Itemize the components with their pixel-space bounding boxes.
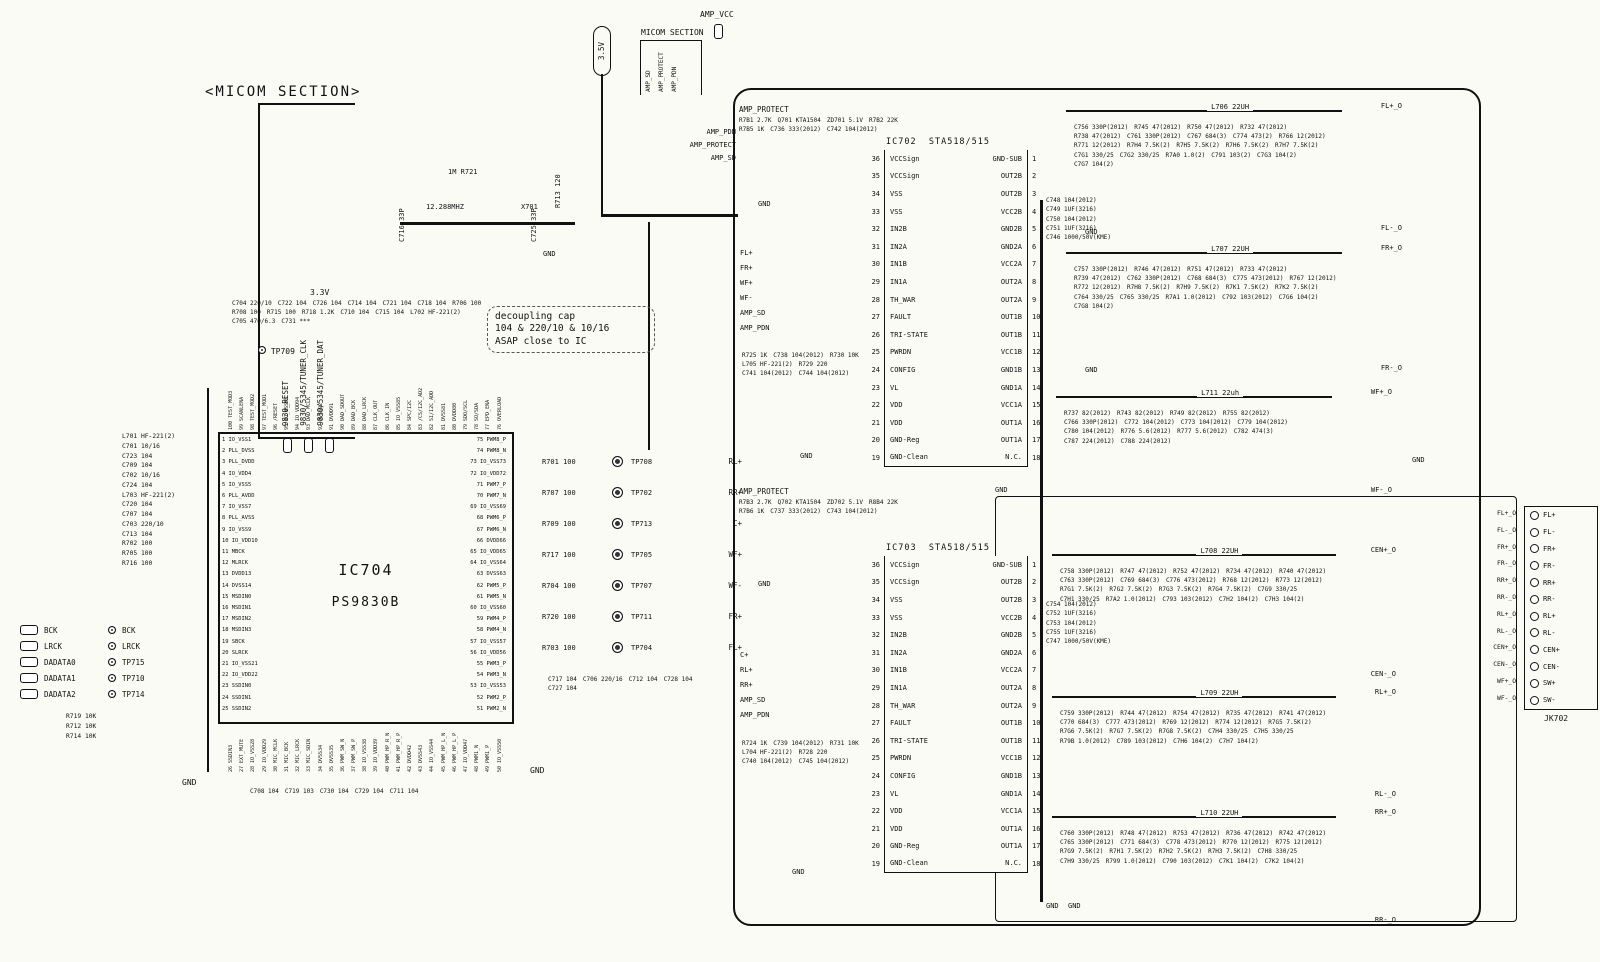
inductor-label: L707 22UH (1207, 245, 1253, 253)
testpoint-label: TP702 (631, 489, 675, 497)
signal-label: AMP_PROTECT (690, 139, 736, 152)
pin-label: 96 /RESET (273, 382, 284, 430)
note-line: decoupling cap (495, 311, 647, 323)
note-line: ASAP close to IC (495, 336, 647, 348)
signal-label: FL+_O (1381, 102, 1402, 110)
micom-section-title: <MICOM SECTION> (205, 84, 361, 100)
part-label: C703 220/10 (122, 520, 175, 530)
ic-pin-row: 28 TH_WAROUT2A 9 (858, 291, 1054, 309)
part-label: C7H5 330/25 (1254, 728, 1294, 735)
signal-label: WF-_O (1371, 486, 1392, 494)
pin-label: GND-Reg (890, 842, 920, 850)
part-label: R7K2 7.5K(2) (1275, 284, 1318, 291)
pin-number: 35 (858, 578, 884, 586)
part-label: C7G2 330/25 (1120, 152, 1160, 159)
part-label: C768 684(3) (1187, 275, 1227, 282)
pin-label: 82 SI/I2C_ADD (429, 382, 440, 430)
ic703-input-parts: R724 1KC739 104(2012)R731 10KL704 HF-221… (742, 740, 860, 766)
part-label: C7H1 330/25 (1060, 596, 1100, 603)
testpoint-label: LRCK (122, 642, 140, 651)
signal-label: RR-_O (1375, 916, 1396, 924)
part-label: R705 100 (122, 549, 175, 559)
pin-label: 48 PWM1_N (474, 724, 485, 772)
part-label: C7G6 104(2) (1279, 294, 1319, 301)
pin-number: 19 (858, 454, 884, 462)
part-label: C7G1 330/25 (1074, 152, 1114, 159)
part-label: R772 12(2012) (1074, 284, 1121, 291)
pin-circle-icon (1530, 645, 1539, 654)
part-label: R742 47(2012) (1279, 830, 1326, 837)
pad-icon (20, 625, 38, 635)
pin-label: SW+ (1543, 679, 1556, 687)
part-label: C707 104 (122, 510, 175, 520)
part-label: C720 104 (122, 500, 175, 510)
part-label: R766 12(2012) (1279, 133, 1326, 140)
pin-number: 34 (858, 596, 884, 604)
wire (1052, 696, 1336, 698)
part-label: R745 47(2012) (1134, 124, 1181, 131)
part-label: R716 100 (122, 559, 175, 569)
part-label: C731 *** (281, 318, 310, 325)
gnd-label: GND (182, 778, 196, 787)
signal-label: FR-_O (1446, 560, 1516, 577)
pin-label: OUT2B (1001, 190, 1022, 198)
signal-label: FR+ (728, 612, 742, 621)
part-label: C773 104(2012) (1181, 419, 1232, 426)
pin-label: VCC2B (1001, 614, 1022, 622)
pin-label: 16 MSDIN1 (222, 603, 258, 614)
resistor-label: R713 120 (554, 166, 562, 208)
pin-label: VDD (890, 825, 903, 833)
part-label: R750 47(2012) (1187, 124, 1234, 131)
pin-label: 21 IO_VSS21 (222, 659, 258, 670)
part-label: C788 224(2012) (1121, 438, 1172, 445)
part-label: L701 HF-221(2) (122, 432, 175, 442)
part-label: R7G1 7.5K(2) (1060, 586, 1103, 593)
pin-label: VCC2B (1001, 208, 1022, 216)
pin-number: 36 (858, 561, 884, 569)
ic-pin-row: 30 IN1BVCC2A 7 (858, 662, 1054, 680)
connector-pin-row: FL+ (1525, 507, 1597, 524)
signal-label: RL-_O (1446, 628, 1516, 645)
connector-pin-row: CEN+ (1525, 641, 1597, 658)
supply-3v3-label: 3.3V (310, 288, 329, 297)
testpoint-caps: C717 104C706 220/16C712 104C728 104C727 … (548, 676, 698, 692)
part-label: R7G5 7.5K(2) (1268, 719, 1311, 726)
amp-vcc-label: AMP_VCC (700, 10, 734, 19)
testpoint-label: BCK (122, 626, 136, 635)
pin-label: 72 IO_VDD72 (470, 469, 506, 480)
pin-number: 9 (1028, 702, 1054, 710)
part-label: R725 1K (742, 352, 767, 359)
pin-label: IN2B (890, 631, 907, 639)
pin-label: CONFIG (890, 366, 915, 374)
part-label: R7G7 7.5K(2) (1109, 728, 1152, 735)
pin-label: 25 SSDIN2 (222, 704, 258, 715)
pin-label: 53 IO_VSS53 (470, 681, 506, 692)
part-label: C760 330P(2012) (1060, 830, 1114, 837)
ic704-top-parts: C704 220/10C722 104C726 104C714 104C721 … (232, 300, 482, 326)
pin-label: 46 PWM_HP_L_P (452, 724, 463, 772)
signal-label: WF- (740, 291, 770, 306)
pin-label: 92 DVSS92 (318, 382, 329, 430)
pin-label: FL- (1543, 528, 1556, 536)
signal-label: FR+_O (1381, 244, 1402, 252)
part-label: C726 104 (313, 300, 342, 307)
pin-label: 32 MIC_LRCK (295, 724, 306, 772)
part-label: C793 103(2012) (1162, 596, 1213, 603)
pad-icon (20, 673, 38, 683)
resistor-label: 1M R721 (448, 168, 478, 176)
pin-number: 28 (858, 702, 884, 710)
wire (1052, 816, 1336, 818)
part-label: C718 104 (417, 300, 446, 307)
pin-label: TH_WAR (890, 702, 915, 710)
resistor-label: R712 10K (66, 722, 96, 732)
testpoint-label: TP710 (122, 674, 145, 683)
signal-label: FL+ (740, 246, 770, 261)
ic703-input-signals: C+RL+RR+AMP_SDAMP_PDN (740, 648, 770, 723)
pin-label: 23 SSDIN0 (222, 681, 258, 692)
part-label: C738 104(2012) (773, 352, 824, 359)
ic702-title: IC702 STA518/515 (886, 138, 990, 148)
part-label: C701 10/16 (122, 442, 175, 452)
testpoint-label: TP711 (631, 613, 675, 621)
part-label: C710 104 (340, 309, 369, 316)
pin-circle-icon (1530, 696, 1539, 705)
left-connectors: BCK BCK LRCK LRCK DADATA0 TP715 DADATA1 (20, 622, 145, 702)
part-label: C7H7 104(2) (1219, 738, 1259, 745)
part-label: C723 104 (122, 452, 175, 462)
ic703-title: IC703 STA518/515 (886, 544, 990, 554)
pin-label: 40 PWM_HP_R_N (385, 724, 396, 772)
part-label: ZD701 5.1V (827, 117, 863, 124)
pin-label: GND1A (1001, 384, 1022, 392)
part-label: C7G8 104(2) (1074, 303, 1114, 310)
pin-label: 22 IO_VDD22 (222, 670, 258, 681)
pin-label: 11 MBCK (222, 547, 258, 558)
pin-label: 4 IO_VDD4 (222, 469, 258, 480)
part-label: C711 104 (390, 788, 419, 795)
pin-label: 45 PWM_HP_L_N (441, 724, 452, 772)
part-label: R731 10K (830, 740, 859, 747)
signal-label: AMP_SD (740, 306, 770, 321)
pin-number: 34 (858, 190, 884, 198)
pin-number: 20 (858, 842, 884, 850)
pin-label: PWRDN (890, 348, 911, 356)
ic704-top-pins: 100 TEST_MOD399 SCANLENA98 TEST_MOD297 T… (228, 382, 508, 430)
part-label: R7G9 7.5K(2) (1060, 848, 1103, 855)
pin-number: 30 (858, 666, 884, 674)
testpoint-row: R707 100 TP702 RR+ (542, 477, 742, 508)
pin-label: OUT2B (1001, 172, 1022, 180)
pin-label: IN2A (890, 649, 907, 657)
pad-label: DADATA0 (44, 658, 102, 667)
connector-pin-row: CEN- (1525, 658, 1597, 675)
ic-pin-row: 26 TRI-STATEOUT1B 11 (858, 326, 1054, 344)
part-label: C736 333(2012) (770, 126, 821, 133)
part-label: R8B4 22K (869, 499, 898, 506)
part-label: R702 100 (122, 539, 175, 549)
pin-label: 85 IO_VSS85 (396, 382, 407, 430)
pin-label: 63 DVSS63 (477, 569, 506, 580)
resistor-label: R720 100 (542, 613, 604, 621)
ic-pin-row: 32 IN2BGND2B 5 (858, 220, 1054, 238)
ic-pin-row: 25 PWRDNVCC1B 12 (858, 344, 1054, 362)
part-label: R739 47(2012) (1074, 275, 1121, 282)
connector-pin-row: RL- (1525, 625, 1597, 642)
pin-label: N.C. (1005, 453, 1022, 461)
ic702-input-parts: R725 1KC738 104(2012)R730 10KL705 HF-221… (742, 352, 860, 378)
part-label: R768 12(2012) (1223, 577, 1270, 584)
part-label: R748 47(2012) (1120, 830, 1167, 837)
pin-number: 13 (1028, 772, 1054, 780)
part-label: R777 5.6(2012) (1177, 428, 1228, 435)
connector-pin-row: RL+ (1525, 608, 1597, 625)
filter-channel-fl: L706 22UH FL+_O FL-_O C756 330P(2012)R74… (1066, 98, 1402, 234)
part-label: C765 330P(2012) (1060, 839, 1114, 846)
pin-label: 6 PLL_AVDD (222, 491, 258, 502)
signal-label: AMP_SD (711, 152, 736, 165)
part-label: R747 47(2012) (1120, 568, 1167, 575)
part-label: R7H2 7.5K(2) (1159, 848, 1202, 855)
ic-pin-row: 27 FAULTOUT1B 10 (858, 308, 1054, 326)
signal-label: AMP_PDN (740, 708, 770, 723)
pin-label: CEN- (1543, 663, 1560, 671)
pin-label: 61 PWM5_N (477, 592, 506, 603)
part-label: R7G8 7.5K(2) (1159, 728, 1202, 735)
pin-number: 2 (1028, 172, 1054, 180)
testpoint-icon (108, 690, 116, 698)
signal-label: RR+_O (1375, 808, 1396, 816)
pin-label: TH_WAR (890, 296, 915, 304)
pin-label: 79 SDO/SCL (463, 382, 474, 430)
pin-label: 7 IO_VSS7 (222, 502, 258, 513)
pin-label: 78 SO/SDA (474, 382, 485, 430)
part-label: C792 103(2012) (1222, 294, 1273, 301)
ic702-chip: 36 VCCSignGND-SUB 1 35 VCCSignOUT2B 2 34… (858, 150, 1054, 467)
ic-pin-row: 22 VDDVCC1A 15 (858, 396, 1054, 414)
pin-number: 24 (858, 772, 884, 780)
pin-label: IN2B (890, 225, 907, 233)
pin-number: 35 (858, 172, 884, 180)
pin-number: 26 (858, 331, 884, 339)
pin-label: OUT2A (1001, 278, 1022, 286)
part-label: C730 104 (320, 788, 349, 795)
pin-label: 90 DAD_SDOUT (340, 382, 351, 430)
pin-label: 9 IO_VSS9 (222, 525, 258, 536)
part-label: C759 330P(2012) (1060, 710, 1114, 717)
part-label: R706 100 (452, 300, 481, 307)
pin-label: SW- (1543, 696, 1556, 704)
part-label: C7H6 104(2) (1173, 738, 1213, 745)
pin-number: 22 (858, 807, 884, 815)
ic-pin-row: 27 FAULTOUT1B 10 (858, 714, 1054, 732)
gnd-label: GND (800, 452, 813, 460)
signal-label: AMP_PROTECT (739, 106, 907, 115)
pin-label: CONFIG (890, 772, 915, 780)
pin-label: 93 DAD_MCLK (306, 382, 317, 430)
gnd-label: GND (758, 580, 771, 588)
pin-label: 13 DVDD13 (222, 569, 258, 580)
signal-label: RL+_O (1446, 611, 1516, 628)
pin-label: 38 IO_VSS38 (362, 724, 373, 772)
pin-number: 23 (858, 790, 884, 798)
ic-pin-row: 36 VCCSignGND-SUB 1 (858, 556, 1054, 574)
pin-number: 32 (858, 631, 884, 639)
gnd-label: GND (995, 486, 1008, 494)
pin-number: 12 (1028, 348, 1054, 356)
part-label: C778 473(2012) (1166, 839, 1217, 846)
part-label: R7B3 2.7K (739, 499, 772, 506)
pin-label: 12 MLRCK (222, 558, 258, 569)
pin-label: 98 TEST_MOD2 (250, 382, 261, 430)
signal-label: RL+_O (1375, 688, 1396, 696)
micom2-title: MICOM SECTION (641, 28, 704, 37)
part-label: Q702 KTA1504 (778, 499, 821, 506)
part-label: R7B1 2.7K (739, 117, 772, 124)
pin-label: OUT1A (1001, 419, 1022, 427)
testpoint-icon (108, 658, 116, 666)
pin-number: 21 (858, 825, 884, 833)
pin-label: 83 /CS/I2C_AD2 (418, 382, 429, 430)
pin-label: GND2A (1001, 649, 1022, 657)
pin-number: 7 (1028, 666, 1054, 674)
pin-label: VDD (890, 807, 903, 815)
signal-label: RR-_O (1446, 594, 1516, 611)
wire (1052, 554, 1336, 556)
part-label: C7H9 330/25 (1060, 858, 1100, 865)
signal-label: RL-_O (1375, 790, 1396, 798)
part-label: C770 684(3) (1060, 719, 1100, 726)
signal-label: C+ (733, 519, 742, 528)
pin-label: VCC1A (1001, 401, 1022, 409)
part-label: C719 103 (285, 788, 314, 795)
resistor-label: R701 100 (542, 458, 604, 466)
pin-label: RR- (1543, 595, 1556, 603)
ic-pin-row: 20 GND-RegOUT1A 17 (858, 838, 1054, 856)
ic702-input-signals: FL+FR+WF+WF-AMP_SDAMP_PDN (740, 246, 770, 336)
part-label: R7H7 7.5K(2) (1275, 142, 1318, 149)
pin-number: 14 (1028, 790, 1054, 798)
ic-pin-row: 25 PWRDNVCC1B 12 (858, 750, 1054, 768)
part-label: C757 330P(2012) (1074, 266, 1128, 273)
part-label: R799 1.0(2012) (1106, 858, 1157, 865)
part-label: C7H2 104(2) (1219, 596, 1259, 603)
ic-pin-row: 29 IN1AOUT2A 8 (858, 273, 1054, 291)
pin-number: 28 (858, 296, 884, 304)
resistor-label: R707 100 (542, 489, 604, 497)
part-label: R753 47(2012) (1173, 830, 1220, 837)
pin-label: 62 PWM5_P (477, 581, 506, 592)
part-label: L703 HF-221(2) (122, 491, 175, 501)
pin-label: VCCSign (890, 172, 920, 180)
part-label: R7B5 1K (739, 126, 764, 133)
pin-circle-icon (1530, 679, 1539, 688)
pin-label: FR- (1543, 562, 1556, 570)
pin-label: 57 IO_VSS57 (470, 637, 506, 648)
pin-label: OUT1B (1001, 719, 1022, 727)
pin-number: 16 (1028, 419, 1054, 427)
signal-label: CEN+_O (1446, 644, 1516, 661)
pin-label: 99 SCANLENA (239, 382, 250, 430)
part-label: L705 HF-221(2) (742, 361, 793, 368)
pin-number: 9 (1028, 296, 1054, 304)
part-label: C713 104 (122, 530, 175, 540)
pin-label: 27 EXT_MUTE (239, 724, 250, 772)
pin-label: 2 PLL_DVSS (222, 446, 258, 457)
part-label: C789 103(2012) (1117, 738, 1168, 745)
part-label: C722 104 (278, 300, 307, 307)
part-label: C777 473(2012) (1106, 719, 1157, 726)
testpoint-icon (108, 674, 116, 682)
part-label: C761 330P(2012) (1127, 133, 1181, 140)
testpoint-label: TP705 (631, 551, 675, 559)
pin-label: IN1A (890, 684, 907, 692)
pin-number: 27 (858, 313, 884, 321)
part-label: R7K1 7.5K(2) (1226, 284, 1269, 291)
connector-pin-row: RR- (1525, 591, 1597, 608)
pin-label: 54 PWM3_N (477, 670, 506, 681)
micom2-signal-label: AMP_SD (646, 46, 653, 92)
part-label: C714 104 (348, 300, 377, 307)
ic704-bottom-parts: C708 104C719 103C730 104C729 104C711 104 (250, 788, 500, 795)
pin-number: 27 (858, 719, 884, 727)
pin-label: 3 PLL_DVDD (222, 457, 258, 468)
pin-number: 25 (858, 348, 884, 356)
pin-label: 26 SSDIN3 (228, 724, 239, 772)
pin-number: 21 (858, 419, 884, 427)
pin-label: VCC2A (1001, 666, 1022, 674)
pin-circle-icon (1530, 662, 1539, 671)
part-label: R751 47(2012) (1187, 266, 1234, 273)
pin-number: 11 (1028, 737, 1054, 745)
testpoint-icon (108, 642, 116, 650)
pin-label: OUT1A (1001, 842, 1022, 850)
pin-label: 24 SSDIN1 (222, 693, 258, 704)
part-label: C758 330P(2012) (1060, 568, 1114, 575)
part-label: C7G3 104(2) (1257, 152, 1297, 159)
pin-label: VCCSign (890, 155, 920, 163)
pin-label: GND-SUB (992, 561, 1022, 569)
signal-label: AMP_PDN (740, 321, 770, 336)
pin-label: 41 PWM_HP_R_P (396, 724, 407, 772)
signal-label: WF+ (740, 276, 770, 291)
pin-label: 31 MIC_BCK (284, 724, 295, 772)
note-line: 104 & 220/10 & 10/16 (495, 323, 647, 335)
pin-label: 60 IO_VSS60 (470, 603, 506, 614)
part-label: C7G7 104(2) (1074, 161, 1114, 168)
part-label: C767 684(3) (1187, 133, 1227, 140)
jk702-wire-labels: FL+_OFL-_OFR+_OFR-_ORR+_ORR-_ORL+_ORL-_O… (1446, 510, 1516, 712)
pin-number: 13 (1028, 366, 1054, 374)
testpoint-row: R701 100 TP708 RL+ (542, 446, 742, 477)
pin-label: GND1B (1001, 366, 1022, 374)
connector-row: BCK BCK (20, 622, 145, 638)
part-label: R7A2 1.0(2012) (1106, 596, 1157, 603)
connector-row: DADATA1 TP710 (20, 670, 145, 686)
part-label: R7H9 7.5K(2) (1176, 284, 1219, 291)
part-label: R724 1K (742, 740, 767, 747)
pin-number: 24 (858, 366, 884, 374)
signal-label: RR+ (740, 678, 770, 693)
pin-number: 6 (1028, 649, 1054, 657)
part-label: R7H5 7.5K(2) (1176, 142, 1219, 149)
ic-pin-row: 33 VSSVCC2B 4 (858, 203, 1054, 221)
testpoint-row: R704 100 TP707 WF- (542, 570, 742, 601)
part-label: R744 47(2012) (1120, 710, 1167, 717)
signal-label: RL+ (740, 663, 770, 678)
